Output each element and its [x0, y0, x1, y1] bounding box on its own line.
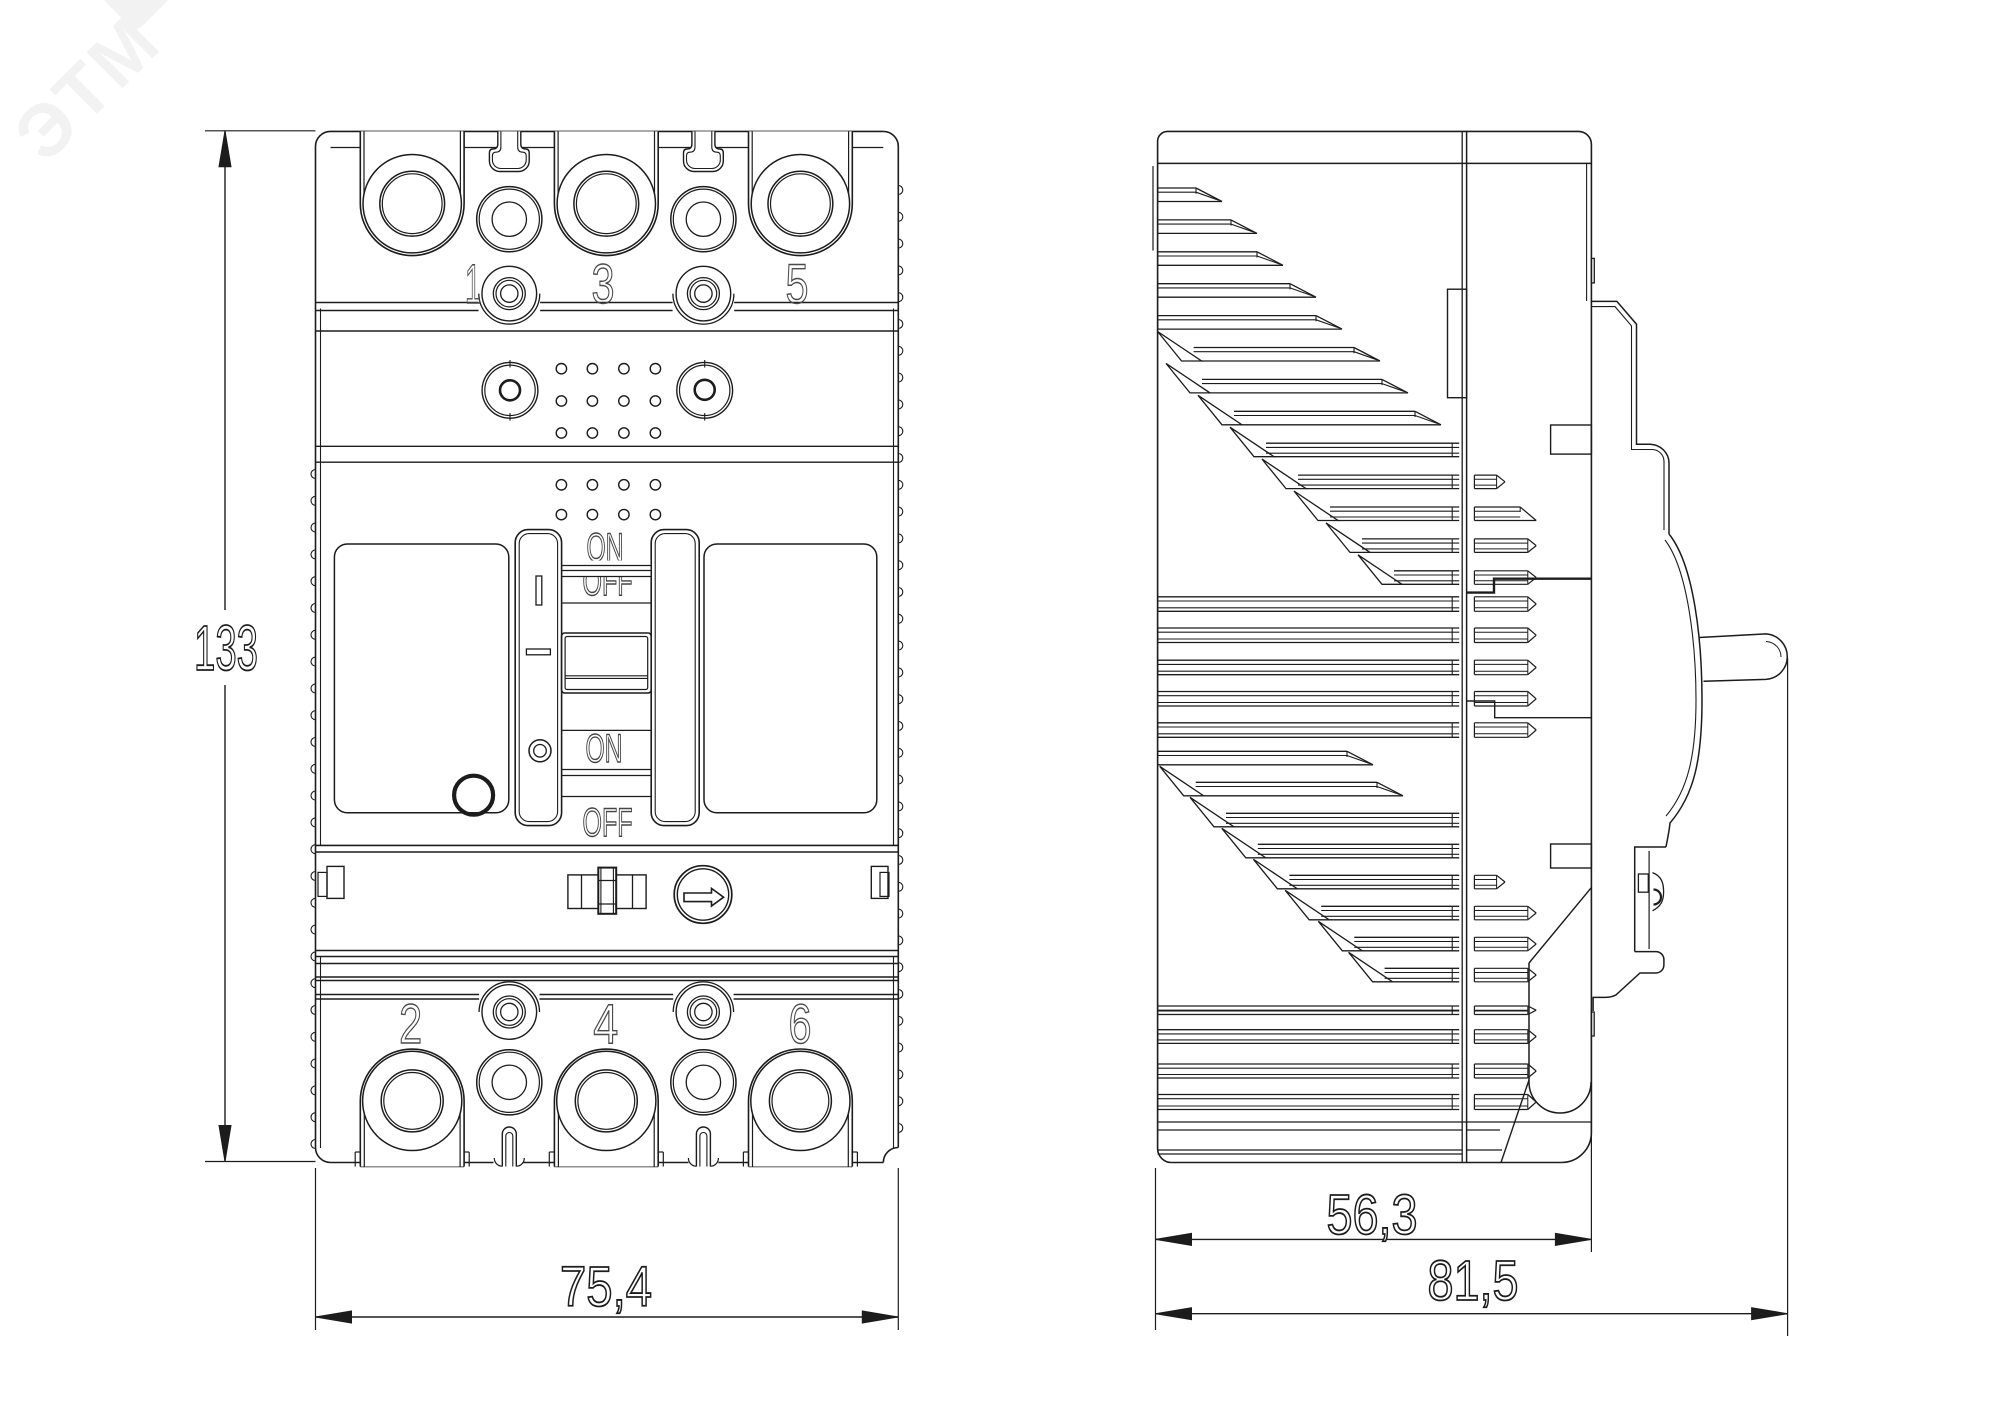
- svg-text:133: 133: [194, 612, 258, 684]
- svg-text:75,4: 75,4: [560, 1255, 652, 1319]
- svg-text:56,3: 56,3: [1327, 1183, 1418, 1247]
- svg-text:OFF: OFF: [583, 801, 633, 845]
- svg-text:4: 4: [593, 992, 618, 1055]
- svg-text:81,5: 81,5: [1428, 1249, 1519, 1313]
- svg-text:1: 1: [465, 252, 481, 315]
- svg-text:3: 3: [592, 252, 615, 315]
- svg-text:ON: ON: [586, 727, 623, 771]
- svg-text:6: 6: [789, 992, 812, 1055]
- svg-text:5: 5: [786, 252, 809, 315]
- svg-text:2: 2: [399, 992, 422, 1055]
